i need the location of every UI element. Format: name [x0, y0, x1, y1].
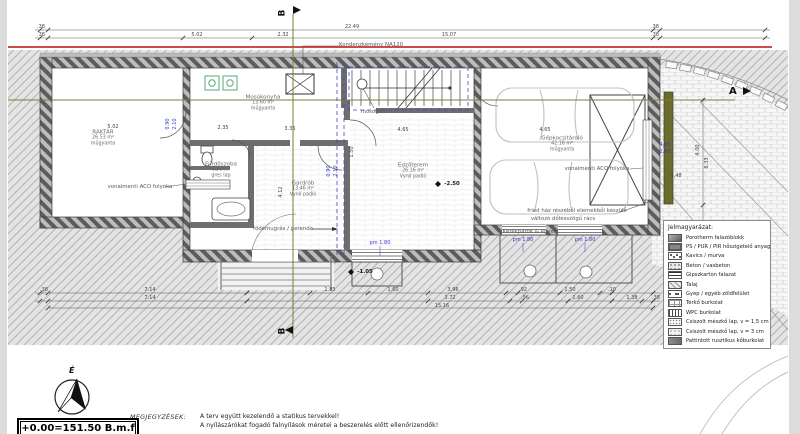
legend-item: Kavics / murva: [668, 252, 766, 261]
north-label: É: [69, 366, 74, 375]
legend-item: Csiszolt mészkő lap, v = 3 cm: [668, 327, 766, 336]
right-margin-strip: [789, 0, 800, 434]
legend-swatch-icon: [668, 262, 682, 270]
legend-item: Térkő burkolat: [668, 299, 766, 308]
section-marker-b-top: B: [277, 10, 287, 17]
notes-lines: A terv együtt kezelendő a statikus terve…: [200, 413, 438, 431]
datum-elevation-box: +0.00=151.50 B.m.f: [17, 418, 139, 434]
note-line: A terv együtt kezelendő a statikus terve…: [200, 413, 438, 422]
legend-swatch-icon: [668, 243, 682, 251]
left-margin-strip: [0, 0, 7, 434]
legend-item: Porotherm falazóblokk: [668, 233, 766, 242]
north-compass: [55, 379, 89, 414]
legend-swatch-icon: [668, 318, 682, 326]
plan-drawing: [0, 0, 800, 434]
legend-item: WPC burkolat: [668, 308, 766, 317]
legend-item: Gyep / egyéb zöldfelület: [668, 289, 766, 298]
legend-item: Gipszkarton falazat: [668, 271, 766, 280]
legend-items: Porotherm falazóblokk PS / PUR / PIR hős…: [668, 233, 766, 346]
legend-item: PS / PUR / PIR hőszigetelő anyag: [668, 242, 766, 251]
legend-swatch-icon: [668, 271, 682, 279]
legend-swatch-icon: [668, 290, 682, 298]
legend-swatch-icon: [668, 299, 682, 307]
legend-swatch-icon: [668, 328, 682, 336]
legend-item: Beton / vasbeton: [668, 261, 766, 270]
legend: Jelmagyarázat: Porotherm falazóblokk PS …: [663, 220, 771, 349]
section-marker-b-bottom: B: [277, 328, 287, 335]
legend-item: Csiszolt mészkő lap, v = 1,5 cm: [668, 318, 766, 327]
gate: [664, 92, 673, 204]
legend-swatch-icon: [668, 252, 682, 260]
note-line: A nyílászárókat fogadó falnyílások méret…: [200, 422, 438, 431]
legend-title: Jelmagyarázat:: [668, 224, 766, 231]
legend-swatch-icon: [668, 234, 682, 242]
floor-plan-sheet: RAKTÁR 26.53 m² műgyanta Mosókonyha 13.6…: [0, 0, 800, 434]
notes-block: MEGJEGYZÉSEK: A terv együtt kezelendő a …: [130, 413, 438, 431]
datum-elevation-text: +0.00=151.50 B.m.f: [21, 423, 135, 434]
legend-swatch-icon: [668, 309, 682, 317]
legend-swatch-icon: [668, 281, 682, 289]
section-marker-a: A: [729, 86, 737, 97]
insulation-band: [40, 53, 660, 57]
legend-item: Talaj: [668, 280, 766, 289]
legend-swatch-icon: [668, 337, 682, 345]
legend-item: Pattintott rusztikus kőburkolat: [668, 336, 766, 345]
road-arcs: [700, 356, 788, 434]
